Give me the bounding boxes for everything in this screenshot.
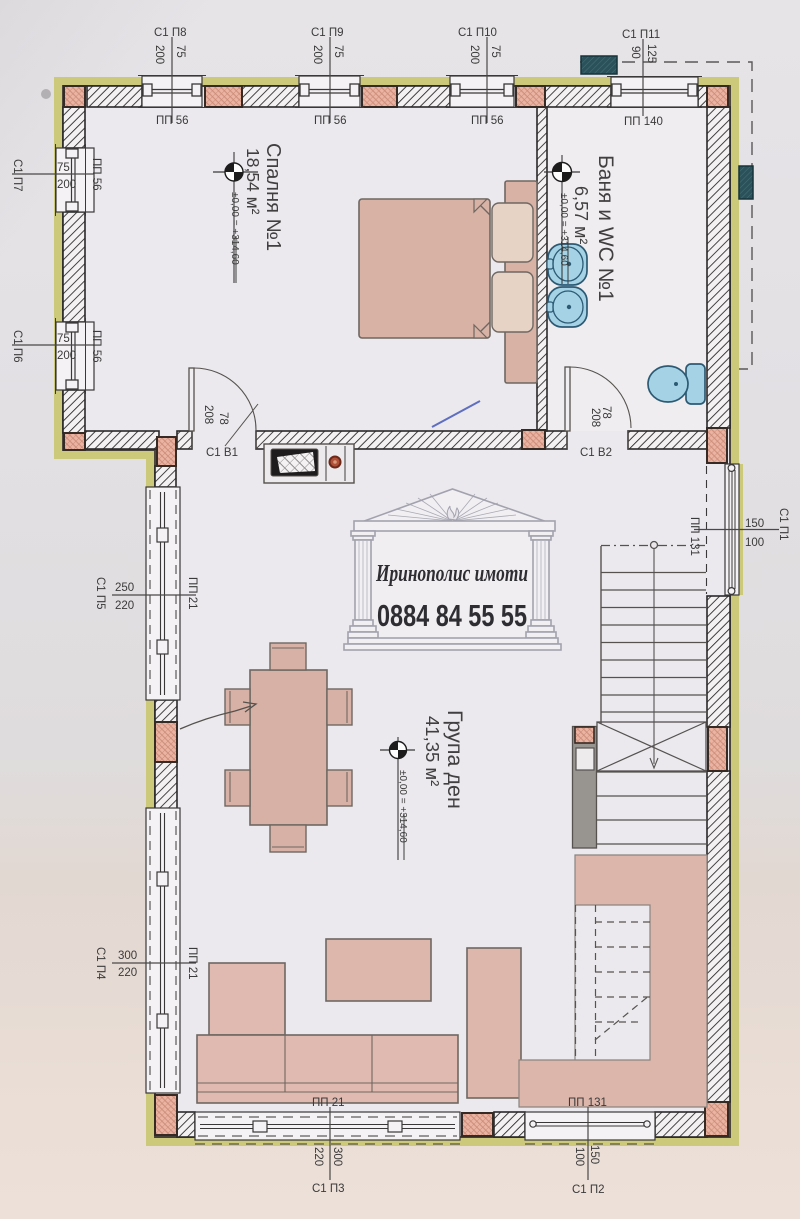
svg-text:С1 В2: С1 В2 [580, 447, 612, 459]
svg-text:Баня и WC №1: Баня и WC №1 [594, 155, 617, 302]
svg-text:С1 П8: С1 П8 [154, 27, 187, 39]
svg-text:78: 78 [217, 412, 229, 425]
svg-text:200: 200 [311, 45, 323, 64]
svg-text:200: 200 [153, 45, 165, 64]
svg-text:90: 90 [629, 46, 641, 59]
svg-text:С1 П5: С1 П5 [94, 577, 106, 610]
svg-text:300: 300 [118, 950, 137, 962]
svg-text:±0,00 = +314,60: ±0,00 = +314,60 [397, 770, 408, 843]
svg-text:Спалня №1: Спалня №1 [262, 143, 284, 251]
svg-text:75: 75 [489, 45, 501, 58]
svg-text:ПП 56: ПП 56 [90, 158, 102, 191]
svg-text:С1 П10: С1 П10 [458, 27, 497, 39]
svg-text:С1 П2: С1 П2 [572, 1184, 605, 1196]
svg-text:С1 П1: С1 П1 [777, 508, 789, 541]
svg-text:75: 75 [57, 333, 70, 345]
svg-text:С1 П6: С1 П6 [11, 330, 23, 363]
svg-text:75: 75 [332, 45, 344, 58]
svg-text:18,54 м²: 18,54 м² [243, 148, 263, 215]
svg-text:208: 208 [589, 408, 601, 427]
svg-text:Група ден: Група ден [443, 710, 467, 809]
svg-text:ПП 56: ПП 56 [471, 115, 504, 127]
svg-text:6,57 м²: 6,57 м² [571, 186, 591, 244]
svg-text:220: 220 [118, 967, 137, 979]
svg-text:С1 П3: С1 П3 [312, 1183, 345, 1195]
svg-text:С1 П11: С1 П11 [622, 29, 660, 41]
svg-text:250: 250 [115, 582, 134, 594]
svg-text:ПП 56: ПП 56 [90, 330, 102, 363]
svg-text:С1 В1: С1 В1 [206, 447, 238, 459]
svg-text:ПП 56: ПП 56 [156, 115, 189, 127]
svg-text:78: 78 [600, 406, 612, 419]
svg-text:ПП 140: ПП 140 [624, 116, 663, 128]
svg-text:100: 100 [745, 537, 764, 549]
svg-text:0884 84 55 55: 0884 84 55 55 [377, 598, 527, 633]
svg-text:±0,00 = +314,60: ±0,00 = +314,60 [558, 193, 569, 266]
svg-text:С1 П7: С1 П7 [11, 159, 23, 192]
svg-text:220: 220 [312, 1147, 324, 1166]
svg-text:±0,00 = +314,60: ±0,00 = +314,60 [229, 192, 240, 265]
svg-text:150: 150 [588, 1145, 600, 1164]
svg-text:75: 75 [57, 162, 70, 174]
svg-text:41,35 м²: 41,35 м² [422, 716, 443, 786]
svg-text:ПП 21: ПП 21 [186, 577, 198, 610]
svg-text:С1 П4: С1 П4 [94, 947, 106, 980]
svg-text:ПП 56: ПП 56 [314, 115, 347, 127]
svg-text:ПП 131: ПП 131 [688, 517, 700, 556]
svg-text:125: 125 [645, 44, 657, 63]
svg-text:220: 220 [115, 600, 134, 612]
svg-text:75: 75 [174, 45, 186, 58]
svg-text:ПП 21: ПП 21 [312, 1097, 345, 1109]
svg-text:ПП 21: ПП 21 [186, 947, 198, 980]
svg-text:С1 П9: С1 П9 [311, 27, 344, 39]
svg-text:200: 200 [57, 350, 76, 362]
svg-text:Иринополис имоти: Иринополис имоти [375, 561, 528, 587]
svg-text:100: 100 [573, 1147, 585, 1166]
svg-text:300: 300 [331, 1147, 343, 1166]
svg-text:208: 208 [202, 405, 214, 424]
svg-text:ПП 131: ПП 131 [568, 1097, 607, 1109]
svg-text:200: 200 [468, 45, 480, 64]
svg-text:200: 200 [57, 179, 76, 191]
svg-text:150: 150 [745, 518, 764, 530]
